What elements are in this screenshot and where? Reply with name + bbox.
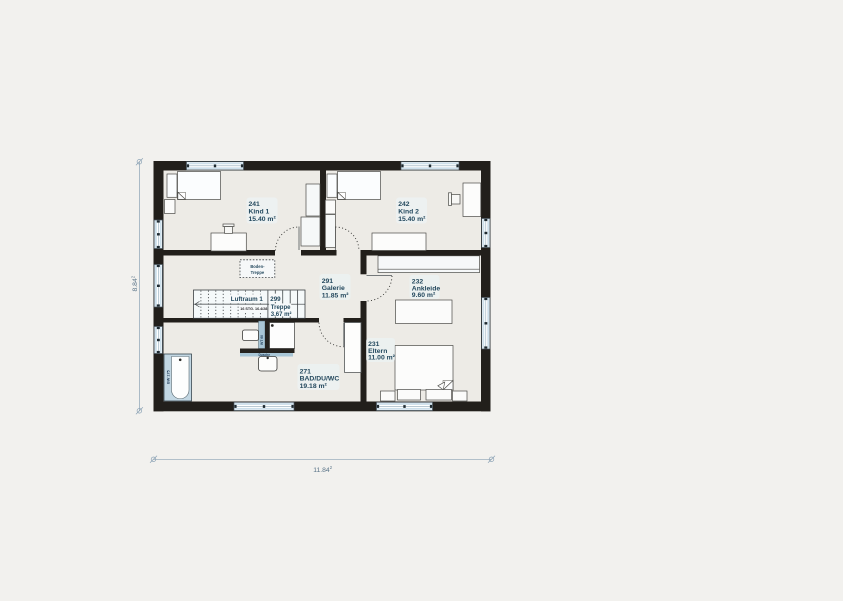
svg-text:271: 271 [300, 368, 312, 375]
svg-text:242: 242 [398, 201, 410, 208]
svg-text:19.18 m²: 19.18 m² [300, 383, 328, 390]
svg-text:Galerie: Galerie [322, 285, 345, 292]
svg-text:291: 291 [322, 278, 334, 285]
svg-text:Treppe: Treppe [251, 270, 265, 275]
svg-text:15.40 m²: 15.40 m² [398, 216, 426, 223]
svg-text:15.40 m²: 15.40 m² [249, 216, 277, 223]
svg-text:11.00 m²: 11.00 m² [368, 355, 396, 362]
svg-text:241: 241 [249, 201, 261, 208]
svg-text:Kind 2: Kind 2 [398, 209, 419, 216]
svg-text:BAD/DU/WC: BAD/DU/WC [300, 376, 340, 383]
svg-text:3.67 m²: 3.67 m² [271, 311, 292, 318]
svg-text:Treppe: Treppe [271, 305, 291, 311]
svg-text:299: 299 [270, 296, 281, 303]
svg-text:Kind 1: Kind 1 [249, 209, 270, 216]
svg-text:11.85 m²: 11.85 m² [322, 292, 350, 299]
svg-text:Boden-: Boden- [250, 264, 265, 269]
svg-text:16 STG. 16.4/28: 16 STG. 16.4/28 [240, 307, 267, 311]
svg-text:BW 175: BW 175 [167, 370, 171, 384]
svg-text:9.60 m²: 9.60 m² [412, 292, 436, 299]
svg-text:Luftraum 1: Luftraum 1 [231, 296, 264, 303]
svg-text:WT 60: WT 60 [260, 335, 264, 345]
